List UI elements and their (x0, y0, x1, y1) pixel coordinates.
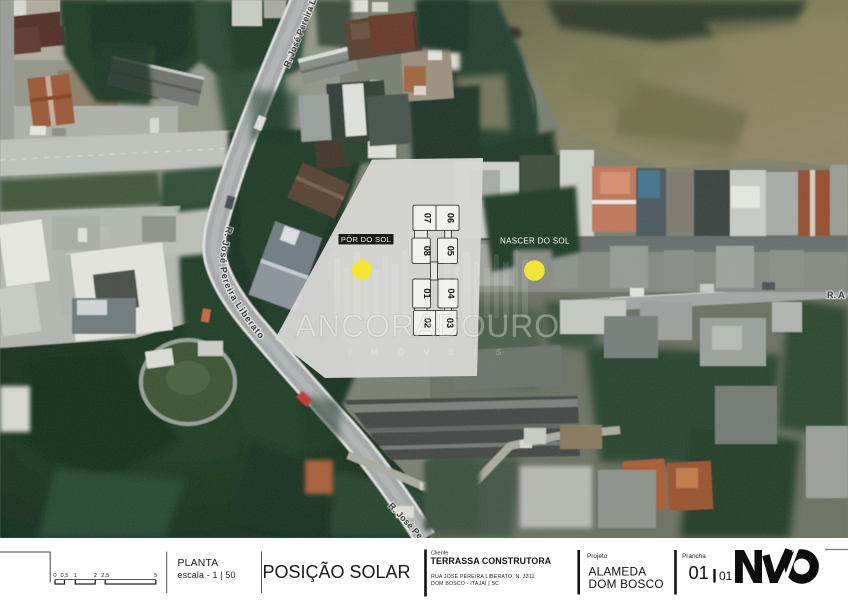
svg-text:IMÓVEIS: IMÓVEIS (349, 347, 521, 357)
svg-text:07: 07 (423, 213, 433, 223)
svg-text:TERRASSA CONSTRUTORA: TERRASSA CONSTRUTORA (431, 556, 552, 566)
svg-text:PÔR DO SOL: PÔR DO SOL (341, 235, 391, 244)
svg-text:06: 06 (446, 213, 456, 223)
svg-text:01: 01 (689, 562, 709, 583)
svg-text:NASCER DO SOL: NASCER DO SOL (500, 236, 570, 245)
svg-text:08: 08 (422, 246, 432, 256)
svg-text:ANCORADOURO: ANCORADOURO (295, 308, 560, 344)
svg-text:DOM BOSCO: DOM BOSCO (589, 577, 664, 591)
svg-text:escala - 1 | 50: escala - 1 | 50 (178, 570, 236, 580)
svg-text:0,5: 0,5 (60, 573, 68, 579)
svg-text:5: 5 (154, 573, 157, 579)
svg-text:05: 05 (446, 246, 456, 256)
svg-text:PLANTA: PLANTA (178, 558, 219, 569)
svg-text:Projeto: Projeto (587, 553, 608, 560)
svg-text:0: 0 (53, 573, 56, 579)
svg-text:2: 2 (94, 573, 97, 579)
svg-text:2,5: 2,5 (101, 573, 109, 579)
svg-text:POSIÇÃO SOLAR: POSIÇÃO SOLAR (262, 561, 410, 582)
svg-text:R. A: R. A (827, 290, 845, 300)
svg-text:01: 01 (719, 569, 733, 583)
svg-text:RUA JOSÉ PEREIRA LIBERATO, N.: RUA JOSÉ PEREIRA LIBERATO, N. 3311 (431, 573, 535, 580)
svg-text:1: 1 (74, 573, 77, 579)
svg-text:DOM BOSCO - ITAJAÍ | SC: DOM BOSCO - ITAJAÍ | SC (431, 580, 499, 587)
svg-text:Prancha: Prancha (682, 553, 706, 560)
svg-text:01: 01 (422, 288, 432, 298)
